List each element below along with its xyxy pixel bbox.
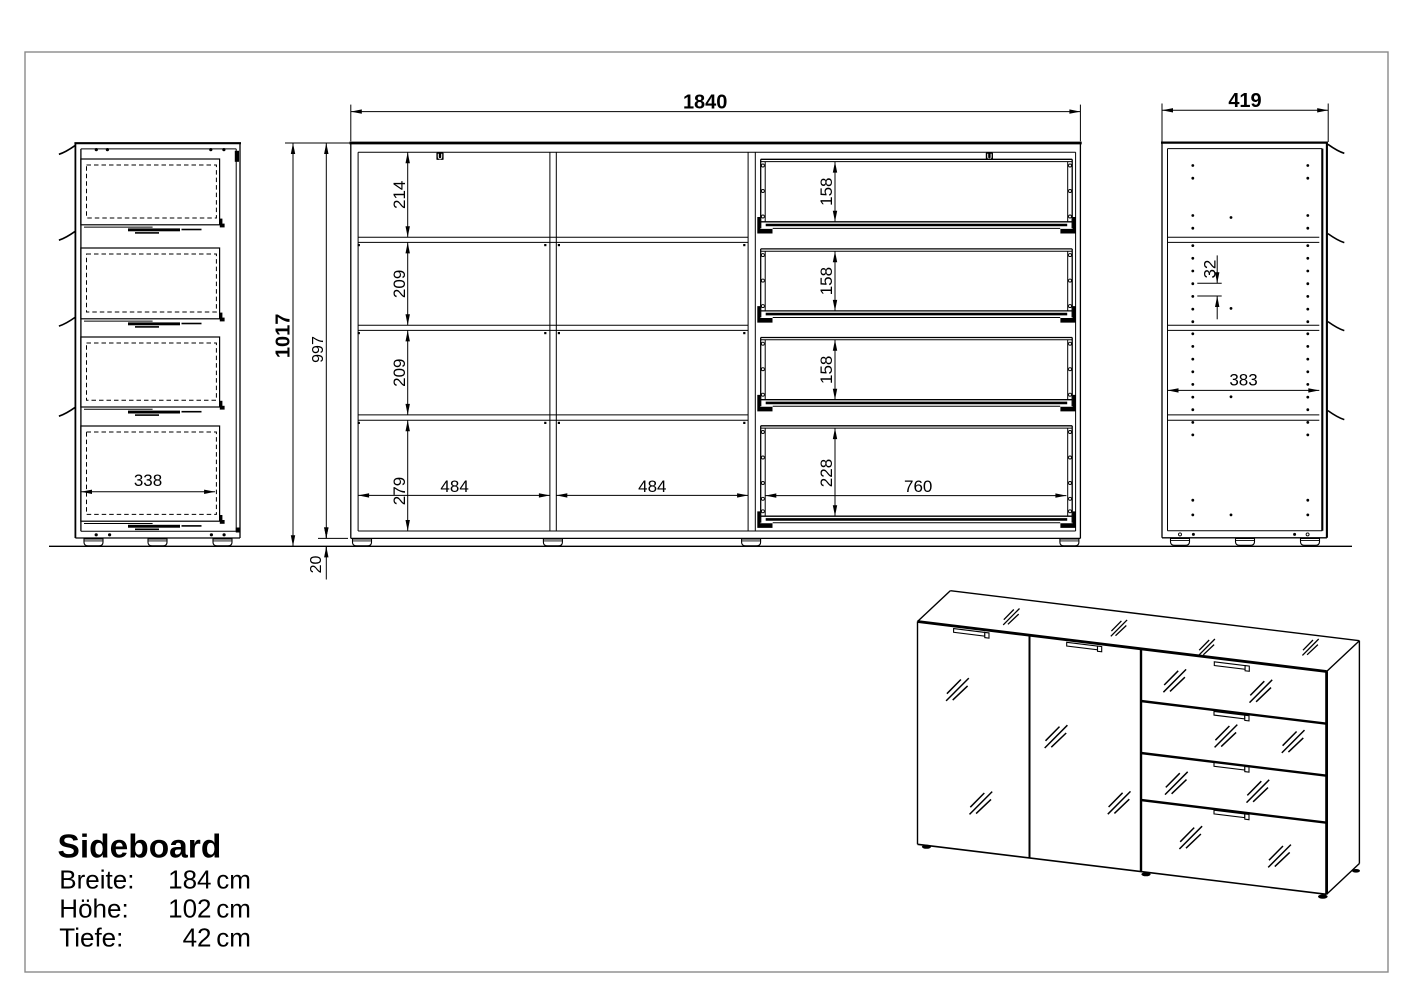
- svg-text:209: 209: [390, 359, 409, 387]
- svg-text:158: 158: [817, 178, 836, 206]
- svg-text:Sideboard: Sideboard: [58, 828, 222, 865]
- svg-text:Höhe:: Höhe:: [59, 893, 128, 923]
- svg-text:338: 338: [134, 471, 162, 490]
- svg-text:760: 760: [904, 477, 932, 496]
- svg-text:1840: 1840: [683, 91, 728, 113]
- svg-text:102: 102: [168, 893, 211, 923]
- svg-text:279: 279: [390, 477, 409, 505]
- svg-text:228: 228: [817, 459, 836, 487]
- svg-text:419: 419: [1228, 90, 1261, 112]
- svg-text:997: 997: [310, 336, 327, 363]
- svg-text:1017: 1017: [272, 314, 294, 359]
- svg-text:158: 158: [817, 267, 836, 295]
- svg-text:484: 484: [440, 477, 468, 496]
- svg-text:20: 20: [308, 556, 325, 574]
- svg-text:383: 383: [1229, 371, 1257, 390]
- svg-text:cm: cm: [216, 893, 251, 923]
- svg-text:Breite:: Breite:: [59, 865, 134, 895]
- svg-text:214: 214: [390, 181, 409, 209]
- svg-text:cm: cm: [216, 865, 251, 895]
- svg-text:42: 42: [183, 922, 212, 952]
- svg-text:158: 158: [817, 356, 836, 384]
- svg-text:184: 184: [168, 865, 211, 895]
- svg-text:484: 484: [638, 477, 666, 496]
- svg-text:32: 32: [1201, 260, 1220, 279]
- svg-text:209: 209: [390, 270, 409, 298]
- svg-text:Tiefe:: Tiefe:: [59, 922, 123, 952]
- svg-text:cm: cm: [216, 922, 251, 952]
